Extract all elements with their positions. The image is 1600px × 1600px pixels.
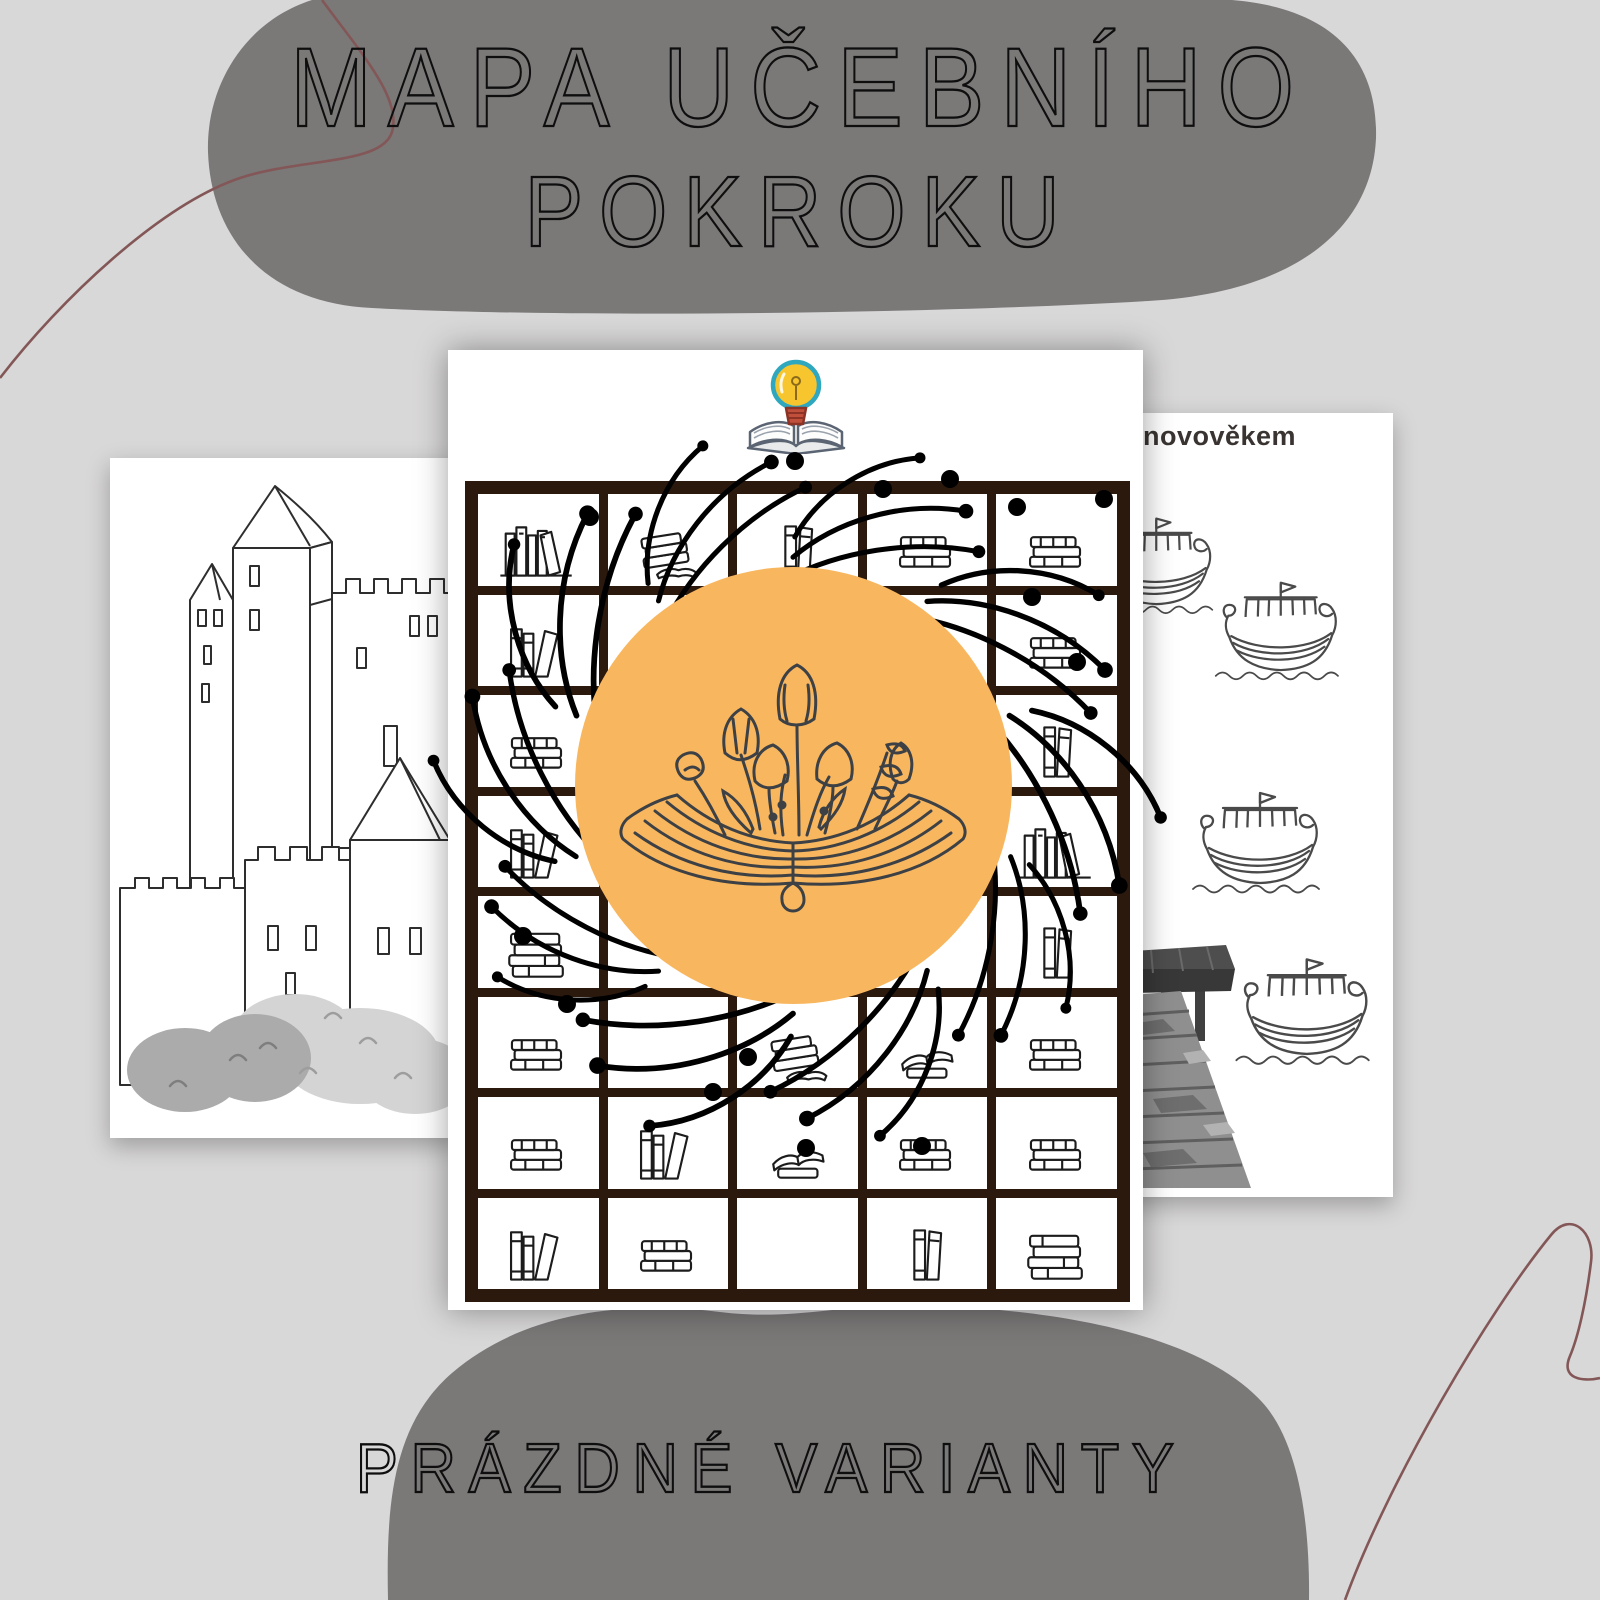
book-illustration-flat-stack	[1011, 1117, 1103, 1188]
shelf-cell	[996, 1198, 1117, 1290]
shelf-cell	[867, 997, 988, 1089]
book-illustration-open-stack	[752, 1117, 844, 1188]
viking-ship-icon	[1216, 583, 1338, 680]
ships-illustration	[1123, 413, 1393, 1197]
book-illustration-leaning-books	[492, 615, 584, 686]
poster-title-line1: MAPA UČEBNÍHO	[96, 20, 1504, 157]
book-illustration-flat-stack	[1011, 514, 1103, 585]
shelf-cell	[867, 1198, 988, 1290]
shelf-cell	[478, 1198, 599, 1290]
shelf-cell	[996, 595, 1117, 687]
shelf-cell	[996, 494, 1117, 586]
book-illustration-leaning-books	[492, 1218, 584, 1289]
book-illustration-open-stack	[881, 1017, 973, 1088]
poster-subtitle: PRÁZDNÉ VARIANTY	[80, 1428, 1520, 1508]
viking-ship-icon	[1193, 793, 1319, 893]
book-illustration-tall-stack	[1011, 1218, 1103, 1289]
ships-page-heading: novověkem	[1143, 421, 1296, 452]
shelf-cell	[996, 695, 1117, 787]
book-illustration-tall-stack	[492, 916, 584, 987]
book-illustration-flat-stack	[492, 1117, 584, 1188]
book-illustration-standing-pair	[1011, 715, 1103, 786]
lightbulb-book-logo-icon	[738, 352, 853, 454]
shelf-cell	[996, 997, 1117, 1089]
shelf-cell	[996, 1097, 1117, 1189]
book-illustration-flat-stack	[1011, 615, 1103, 686]
shelf-cell	[478, 1097, 599, 1189]
shelf-cell	[867, 1097, 988, 1189]
pier-illustration	[1133, 945, 1251, 1188]
book-illustration-standing-pair	[881, 1218, 973, 1289]
center-medallion	[575, 567, 1012, 1004]
book-illustration-books-row	[1011, 816, 1103, 887]
book-illustration-tilted-stack	[752, 1017, 844, 1088]
shelf-cell	[996, 896, 1117, 988]
book-illustration-flat-stack	[492, 715, 584, 786]
book-illustration-flat-stack	[492, 1017, 584, 1088]
shelf-cell	[608, 997, 729, 1089]
decorative-line-bottom-right-icon	[1345, 1224, 1600, 1600]
book-illustration-flat-stack	[1011, 1017, 1103, 1088]
worksheet-page-castle	[110, 458, 458, 1138]
worksheet-page-ships: novověkem	[1123, 413, 1393, 1197]
book-illustration-leaning-books	[622, 1117, 714, 1188]
shelf-cell	[737, 1198, 858, 1290]
shelf-cell	[478, 997, 599, 1089]
book-illustration-books-row	[492, 514, 584, 585]
viking-ship-icon	[1236, 959, 1368, 1063]
book-illustration-standing-pair	[1011, 916, 1103, 987]
poster-title-line2: POKROKU	[96, 157, 1504, 267]
castle-illustration	[110, 458, 458, 1138]
open-book-flowers-icon	[575, 567, 1012, 1004]
shelf-cell	[996, 796, 1117, 888]
shelf-cell	[737, 997, 858, 1089]
shelf-cell	[608, 1198, 729, 1290]
shelf-cell	[608, 1097, 729, 1189]
poster-title: MAPA UČEBNÍHO POKROKU	[96, 20, 1504, 267]
book-illustration-leaning-books	[492, 816, 584, 887]
shelf-cell	[737, 1097, 858, 1189]
book-illustration-flat-stack	[622, 1218, 714, 1289]
book-illustration-flat-stack	[881, 1117, 973, 1188]
